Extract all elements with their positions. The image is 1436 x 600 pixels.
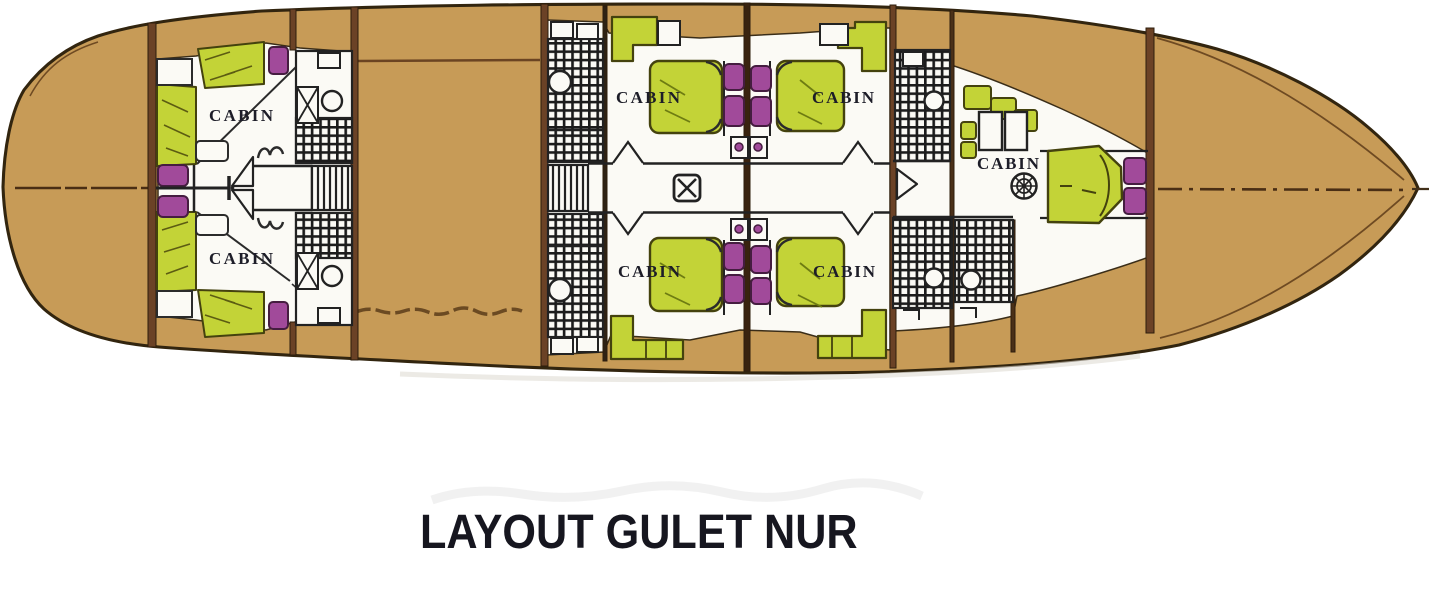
svg-text:CABIN: CABIN (977, 154, 1041, 173)
svg-text:CABIN: CABIN (616, 88, 682, 107)
svg-text:CABIN: CABIN (209, 249, 275, 268)
svg-text:CABIN: CABIN (812, 88, 876, 107)
svg-text:CABIN: CABIN (813, 262, 877, 281)
svg-text:CABIN: CABIN (209, 106, 275, 125)
svg-text:CABIN: CABIN (618, 262, 682, 281)
